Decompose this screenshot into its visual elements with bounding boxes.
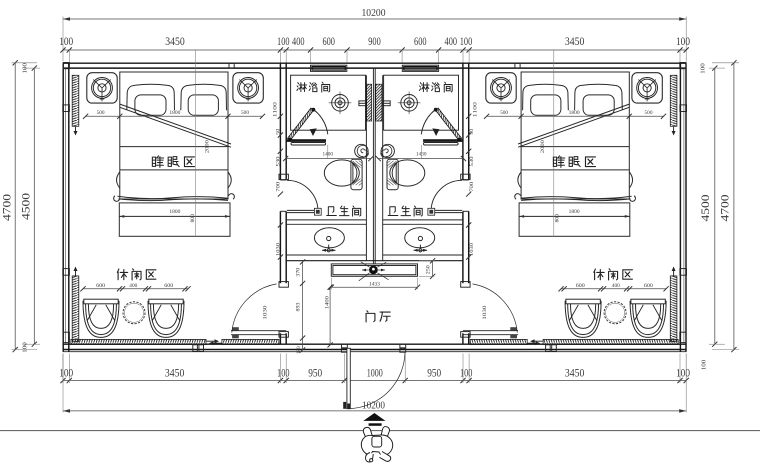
svg-text:4700: 4700 <box>0 194 14 221</box>
svg-text:600: 600 <box>96 283 105 289</box>
svg-text:800: 800 <box>555 214 561 223</box>
svg-text:1433: 1433 <box>369 281 380 287</box>
svg-text:700: 700 <box>276 181 282 192</box>
svg-text:893: 893 <box>296 302 302 311</box>
svg-text:100: 100 <box>700 63 707 74</box>
svg-text:100: 100 <box>59 36 73 48</box>
svg-text:500: 500 <box>500 110 508 116</box>
svg-text:500: 500 <box>97 110 105 116</box>
svg-text:1800: 1800 <box>169 110 180 116</box>
svg-text:50: 50 <box>276 128 282 134</box>
svg-text:3450: 3450 <box>165 36 185 48</box>
svg-text:3450: 3450 <box>565 368 585 380</box>
svg-text:4500: 4500 <box>19 193 33 220</box>
svg-text:600: 600 <box>164 283 173 289</box>
svg-text:1400: 1400 <box>323 151 334 157</box>
svg-text:950: 950 <box>427 368 441 380</box>
svg-text:100: 100 <box>460 36 473 48</box>
svg-text:500: 500 <box>241 110 249 116</box>
svg-text:2000: 2000 <box>205 140 211 154</box>
svg-text:1430: 1430 <box>416 151 427 157</box>
svg-text:530: 530 <box>276 156 282 167</box>
svg-text:100: 100 <box>277 36 290 48</box>
svg-text:1800: 1800 <box>569 110 580 116</box>
svg-text:100: 100 <box>277 368 290 380</box>
svg-text:600: 600 <box>414 36 427 48</box>
svg-text:370: 370 <box>296 267 302 276</box>
svg-text:100: 100 <box>676 368 690 380</box>
svg-text:100: 100 <box>22 63 29 74</box>
svg-text:600: 600 <box>644 283 653 289</box>
svg-text:3450: 3450 <box>165 368 185 380</box>
svg-text:1100: 1100 <box>272 102 278 118</box>
svg-text:10200: 10200 <box>362 8 386 19</box>
svg-text:400: 400 <box>612 283 620 289</box>
svg-text:100: 100 <box>676 36 690 48</box>
svg-text:800: 800 <box>190 214 196 223</box>
svg-text:1800: 1800 <box>169 209 180 215</box>
svg-text:100: 100 <box>701 360 708 371</box>
svg-text:900: 900 <box>368 36 381 48</box>
svg-text:1030: 1030 <box>482 305 488 320</box>
svg-text:600: 600 <box>322 36 335 48</box>
svg-text:100: 100 <box>59 368 73 380</box>
svg-text:100: 100 <box>460 368 473 380</box>
svg-text:2000: 2000 <box>540 140 546 154</box>
svg-text:950: 950 <box>308 368 322 380</box>
svg-text:700: 700 <box>469 181 475 192</box>
svg-text:1400: 1400 <box>325 296 331 310</box>
svg-text:1100: 1100 <box>472 102 478 118</box>
svg-text:250: 250 <box>426 265 432 274</box>
svg-text:100: 100 <box>22 342 29 353</box>
svg-text:500: 500 <box>645 110 653 116</box>
svg-text:4700: 4700 <box>717 195 731 222</box>
svg-text:3450: 3450 <box>565 36 585 48</box>
svg-text:1030: 1030 <box>469 242 475 256</box>
svg-text:1030: 1030 <box>276 242 282 256</box>
svg-text:600: 600 <box>576 283 585 289</box>
svg-text:400: 400 <box>129 283 137 289</box>
svg-text:1800: 1800 <box>569 209 580 215</box>
svg-text:1030: 1030 <box>263 305 269 320</box>
svg-text:1000: 1000 <box>367 368 383 380</box>
svg-text:180: 180 <box>296 346 302 354</box>
svg-text:530: 530 <box>469 156 475 167</box>
svg-text:4500: 4500 <box>698 195 712 222</box>
svg-text:400: 400 <box>292 36 305 48</box>
svg-text:400: 400 <box>445 36 458 48</box>
